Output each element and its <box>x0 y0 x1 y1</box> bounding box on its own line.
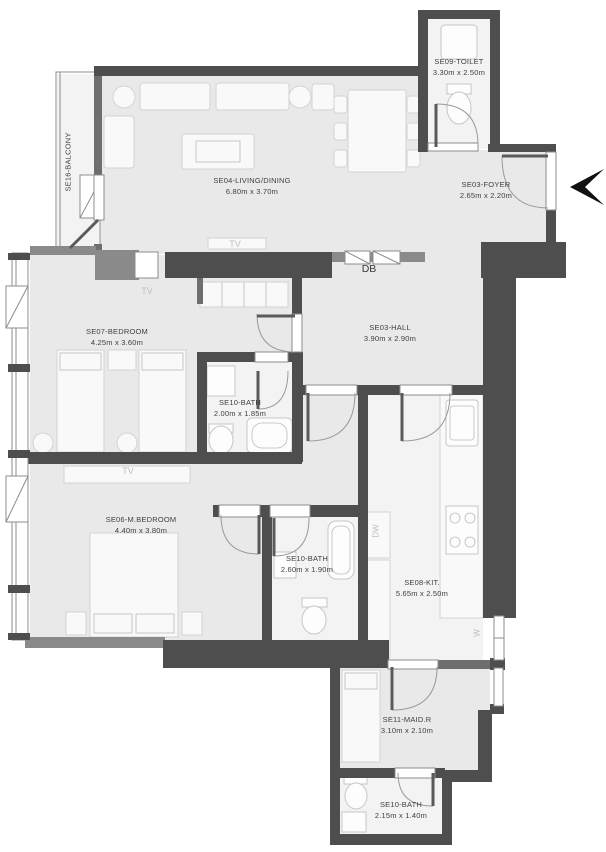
wall <box>330 660 340 845</box>
stool <box>33 433 53 453</box>
sink <box>342 812 366 832</box>
door-opening <box>395 768 435 778</box>
sink <box>207 366 235 396</box>
floor-vestibule-a <box>302 392 358 507</box>
toilet-bowl <box>209 426 233 454</box>
wall <box>490 10 500 152</box>
room-label-bath-2: SE10-BATH 2.60m x 1.90m <box>281 553 333 575</box>
chaise <box>104 116 134 168</box>
nightstand <box>66 612 86 635</box>
floor-plan: SE16-BALCONY SE04-LIVING/DINING 6.80m x … <box>0 0 606 852</box>
wall <box>437 660 490 669</box>
room-label-balcony: SE16-BALCONY <box>63 132 74 191</box>
dining-chair <box>334 150 347 167</box>
room-name: SE11-MAID.R <box>381 714 433 725</box>
room-label-bath-3: SE10-BATH 2.15m x 1.40m <box>375 799 427 821</box>
side-table <box>113 86 135 108</box>
room-dims: 6.80m x 3.70m <box>213 186 290 197</box>
room-label-master-bedroom: SE06-M.BEDROOM 4.40m x 3.80m <box>106 514 177 536</box>
wall <box>95 250 139 280</box>
room-dims: 3.90m x 2.90m <box>364 333 416 344</box>
wall <box>308 505 358 517</box>
wall <box>25 637 165 648</box>
room-dims: 2.15m x 1.40m <box>375 810 427 821</box>
room-label-hall: SE03-HALL 3.90m x 2.90m <box>364 322 416 344</box>
wall-tick <box>8 450 30 458</box>
door-opening <box>388 660 438 669</box>
wall <box>332 834 452 845</box>
bed <box>57 350 104 452</box>
floor-connector <box>420 242 481 264</box>
wall <box>488 144 556 152</box>
nightstand <box>108 350 136 370</box>
hob <box>446 506 478 554</box>
wall <box>262 512 272 640</box>
bed <box>139 350 186 452</box>
wall <box>418 10 428 152</box>
column <box>135 252 158 278</box>
dining-chair <box>407 150 420 167</box>
sofa <box>140 83 210 110</box>
room-dims: 4.25m x 3.60m <box>86 337 148 348</box>
wall <box>481 242 566 278</box>
room-name: SE08-KIT. <box>396 577 448 588</box>
side-table <box>289 86 311 108</box>
sofa <box>216 83 289 110</box>
room-name: SE10-BATH <box>281 553 333 564</box>
wall <box>292 276 302 314</box>
tv-label: TV <box>141 286 153 296</box>
door-opening <box>270 505 310 517</box>
room-label-maid-room: SE11-MAID.R 3.10m x 2.10m <box>381 714 433 736</box>
wall <box>546 210 556 244</box>
room-name: SE10-BATH <box>375 799 427 810</box>
coffee-table <box>182 134 254 169</box>
wall <box>25 452 302 464</box>
door-opening <box>306 385 357 395</box>
dining-chair <box>334 96 347 113</box>
tv-label: TV <box>122 466 134 476</box>
room-dims: 3.10m x 2.10m <box>381 725 433 736</box>
room-dims: 4.40m x 3.80m <box>106 525 177 536</box>
room-name: SE03-HALL <box>364 322 416 333</box>
room-name: SE03-FOYER <box>460 179 512 190</box>
closet-wall <box>165 252 332 278</box>
room-dims: 5.65m x 2.50m <box>396 588 448 599</box>
room-dims: 2.60m x 1.90m <box>281 564 333 575</box>
wall <box>30 246 96 255</box>
maid-window <box>494 668 503 706</box>
stool <box>117 433 137 453</box>
bed <box>90 533 178 637</box>
room-name: SE07-BEDROOM <box>86 326 148 337</box>
dining-table <box>348 90 406 172</box>
bed <box>342 670 380 762</box>
room-label-foyer: SE03-FOYER 2.65m x 2.20m <box>460 179 512 201</box>
wall <box>197 278 203 304</box>
dining-chair <box>334 123 347 140</box>
wall <box>483 276 516 618</box>
door-opening <box>400 385 452 395</box>
room-name: SE09-TOILET <box>433 56 485 67</box>
balcony-window <box>94 175 104 220</box>
room-label-kitchen: SE08-KIT. 5.65m x 2.50m <box>396 577 448 599</box>
wall-tick <box>8 253 30 260</box>
wall <box>292 352 303 462</box>
wall <box>94 74 102 175</box>
floorplan-graphics <box>0 0 606 852</box>
wall <box>94 66 425 76</box>
wall <box>442 770 452 845</box>
room-label-toilet: SE09-TOILET 3.30m x 2.50m <box>433 56 485 78</box>
room-name: SE04-LIVING/DINING <box>213 175 290 186</box>
nightstand <box>182 612 202 635</box>
room-name: SE10-BATH <box>214 397 266 408</box>
room-name: SE06-M.BEDROOM <box>106 514 177 525</box>
entrance-arrow <box>570 169 604 205</box>
w-label: W <box>473 629 482 637</box>
db-label: DB <box>362 263 377 275</box>
room-dims: 2.65m x 2.20m <box>460 190 512 201</box>
toilet-bowl <box>302 606 326 634</box>
wall <box>197 352 207 462</box>
toilet-bowl <box>345 783 367 809</box>
room-label-living-dining: SE04-LIVING/DINING 6.80m x 3.70m <box>213 175 290 197</box>
tv-label: TV <box>229 239 241 249</box>
room-label-bath-1: SE10-BATH 2.00m x 1.85m <box>214 397 266 419</box>
armchair <box>312 84 334 110</box>
dw-label: DW <box>372 524 381 537</box>
room-label-bedroom: SE07-BEDROOM 4.25m x 3.60m <box>86 326 148 348</box>
wall <box>418 10 500 19</box>
wall <box>286 352 303 362</box>
wall-tick <box>8 364 30 372</box>
wall-tick <box>8 633 30 640</box>
wall <box>340 768 397 778</box>
room-dims: 2.00m x 1.85m <box>214 408 266 419</box>
door-opening <box>292 314 302 352</box>
wall <box>358 385 368 662</box>
wall <box>163 640 389 668</box>
sink <box>441 25 477 59</box>
door-opening <box>219 505 260 517</box>
door-opening <box>255 352 288 362</box>
wall-tick <box>8 585 30 593</box>
wall <box>450 385 483 395</box>
room-dims: 3.30m x 2.50m <box>433 67 485 78</box>
room-name: SE16-BALCONY <box>63 132 74 191</box>
entrance-door-frame <box>546 152 556 210</box>
